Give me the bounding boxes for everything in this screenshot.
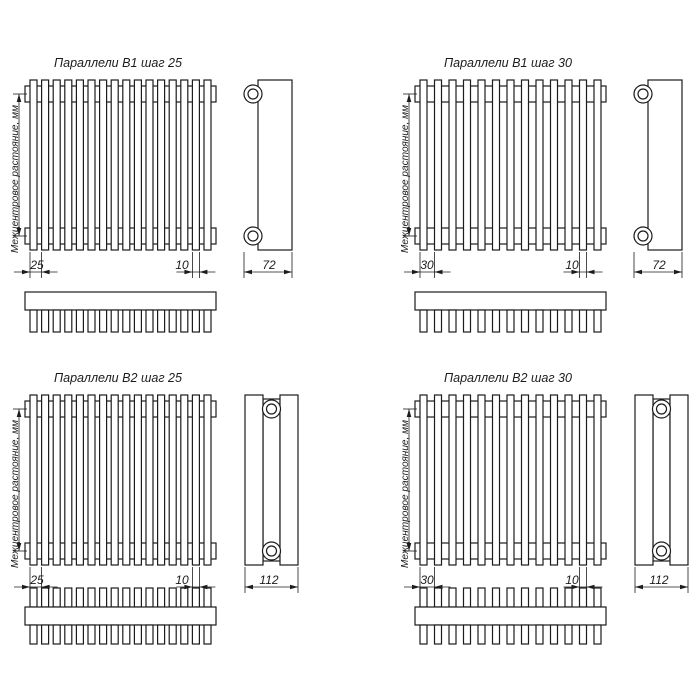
front-view [415, 395, 606, 565]
front-view [25, 80, 216, 250]
front-view [415, 80, 606, 250]
panel-b1-step-25: Параллели В1 шаг 25 Межцентровое растоян… [0, 50, 350, 355]
front-view [25, 395, 216, 565]
depth-dimension: 72 [652, 258, 666, 272]
side-view [244, 80, 292, 250]
tube-width-dimension: 10 [175, 573, 189, 587]
panel-b2-step-25: Параллели В2 шаг 25 Межцентровое растоян… [0, 365, 350, 670]
pitch-dimension: 30 [420, 258, 434, 272]
tube-width-dimension: 10 [565, 573, 579, 587]
panel-b1-step-30: Параллели В1 шаг 30 Межцентровое растоян… [390, 50, 700, 355]
side-view [245, 395, 298, 565]
top-view [25, 588, 216, 644]
drawing-title: Параллели В1 шаг 30 [444, 56, 572, 70]
drawing-geometry [403, 80, 682, 332]
technical-drawing-b2-step-30: Параллели В2 шаг 30 Межцентровое растоян… [390, 365, 700, 670]
technical-drawing-b1-step-30: Параллели В1 шаг 30 Межцентровое растоян… [390, 50, 700, 355]
side-view [635, 395, 688, 565]
depth-dimension: 112 [649, 573, 668, 587]
pitch-dimension: 25 [29, 258, 44, 272]
drawing-title: Параллели В2 шаг 30 [444, 371, 572, 385]
drawing-title: Параллели В2 шаг 25 [54, 371, 182, 385]
top-view [415, 588, 606, 644]
top-view [415, 292, 606, 332]
drawing-geometry [13, 395, 298, 644]
side-view [634, 80, 682, 250]
technical-drawing-b1-step-25: Параллели В1 шаг 25 Межцентровое растоян… [0, 50, 350, 355]
tube-width-dimension: 10 [175, 258, 189, 272]
depth-dimension: 72 [262, 258, 276, 272]
drawing-sheet: Параллели В1 шаг 25 Межцентровое растоян… [0, 0, 700, 700]
top-view [25, 292, 216, 332]
tube-width-dimension: 10 [565, 258, 579, 272]
drawing-title: Параллели В1 шаг 25 [54, 56, 182, 70]
panel-b2-step-30: Параллели В2 шаг 30 Межцентровое растоян… [390, 365, 700, 670]
pitch-dimension: 30 [420, 573, 434, 587]
depth-dimension: 112 [259, 573, 278, 587]
technical-drawing-b2-step-25: Параллели В2 шаг 25 Межцентровое растоян… [0, 365, 350, 670]
drawing-geometry [13, 80, 292, 332]
drawing-geometry [403, 395, 688, 644]
pitch-dimension: 25 [29, 573, 44, 587]
